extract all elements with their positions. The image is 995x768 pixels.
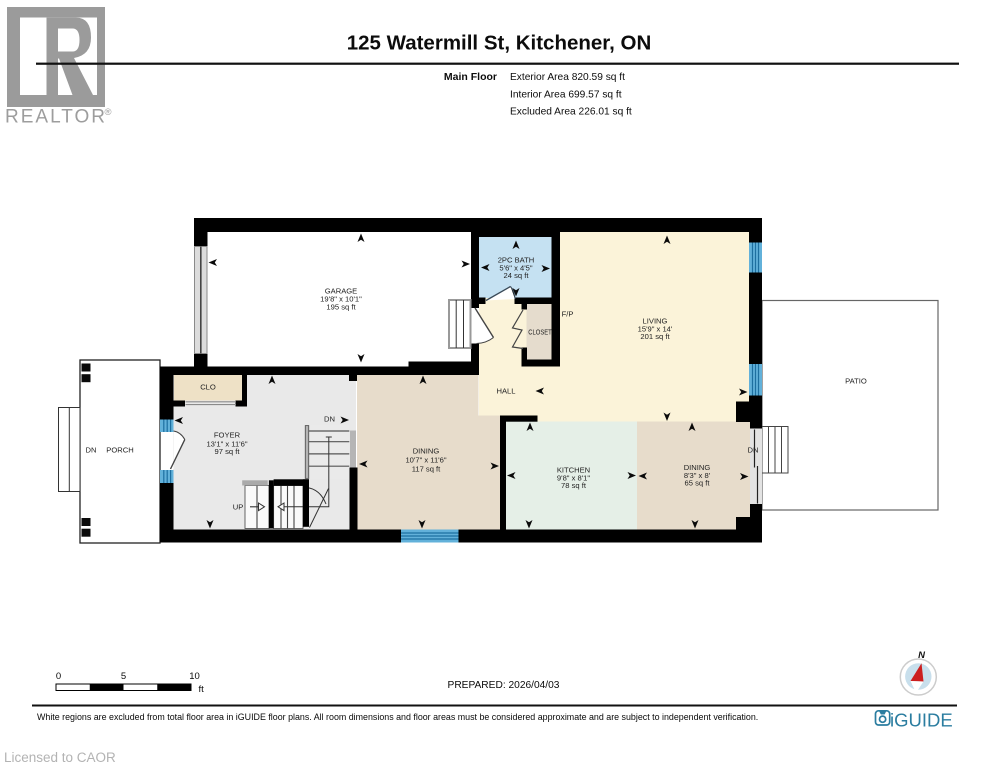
svg-text:REALTOR: REALTOR [5,107,107,128]
svg-text:Interior Area 699.57 sq ft: Interior Area 699.57 sq ft [510,90,622,101]
svg-text:®: ® [105,107,112,118]
svg-text:iGUIDE: iGUIDE [890,710,953,731]
svg-text:78 sq ft: 78 sq ft [561,481,587,490]
svg-text:117 sq ft: 117 sq ft [412,465,441,474]
svg-text:PREPARED: 2026/04/03: PREPARED: 2026/04/03 [448,680,560,691]
svg-text:DN: DN [324,415,335,424]
svg-text:CLO: CLO [200,383,216,392]
svg-text:F/P: F/P [562,310,574,319]
svg-text:Licensed to CAOR: Licensed to CAOR [4,750,116,765]
svg-text:97 sq ft: 97 sq ft [215,447,241,456]
svg-text:10: 10 [189,671,200,682]
svg-text:PATIO: PATIO [845,377,867,386]
svg-text:10'7" x 11'6": 10'7" x 11'6" [405,456,446,465]
svg-text:White regions are excluded fro: White regions are excluded from total fl… [37,712,758,722]
svg-text:DINING: DINING [413,447,440,456]
svg-text:HALL: HALL [497,387,516,396]
svg-text:125 Watermill St, Kitchener, O: 125 Watermill St, Kitchener, ON [347,32,652,55]
svg-text:CLOSET: CLOSET [528,328,552,337]
svg-text:24 sq ft: 24 sq ft [504,271,530,280]
svg-text:ft: ft [199,684,205,695]
svg-text:5: 5 [121,671,126,682]
svg-text:65 sq ft: 65 sq ft [685,479,711,488]
svg-text:DN: DN [748,446,759,455]
svg-text:UP: UP [233,503,244,512]
svg-text:Main Floor: Main Floor [444,71,497,83]
svg-text:FOYER: FOYER [214,431,241,440]
svg-text:0: 0 [56,671,61,682]
svg-text:Excluded Area 226.01 sq ft: Excluded Area 226.01 sq ft [510,107,632,118]
svg-text:PORCH: PORCH [106,446,133,455]
svg-text:DN: DN [86,446,97,455]
svg-text:201 sq ft: 201 sq ft [640,332,670,341]
svg-text:195 sq ft: 195 sq ft [326,303,356,312]
svg-text:Exterior Area 820.59 sq ft: Exterior Area 820.59 sq ft [510,72,625,83]
